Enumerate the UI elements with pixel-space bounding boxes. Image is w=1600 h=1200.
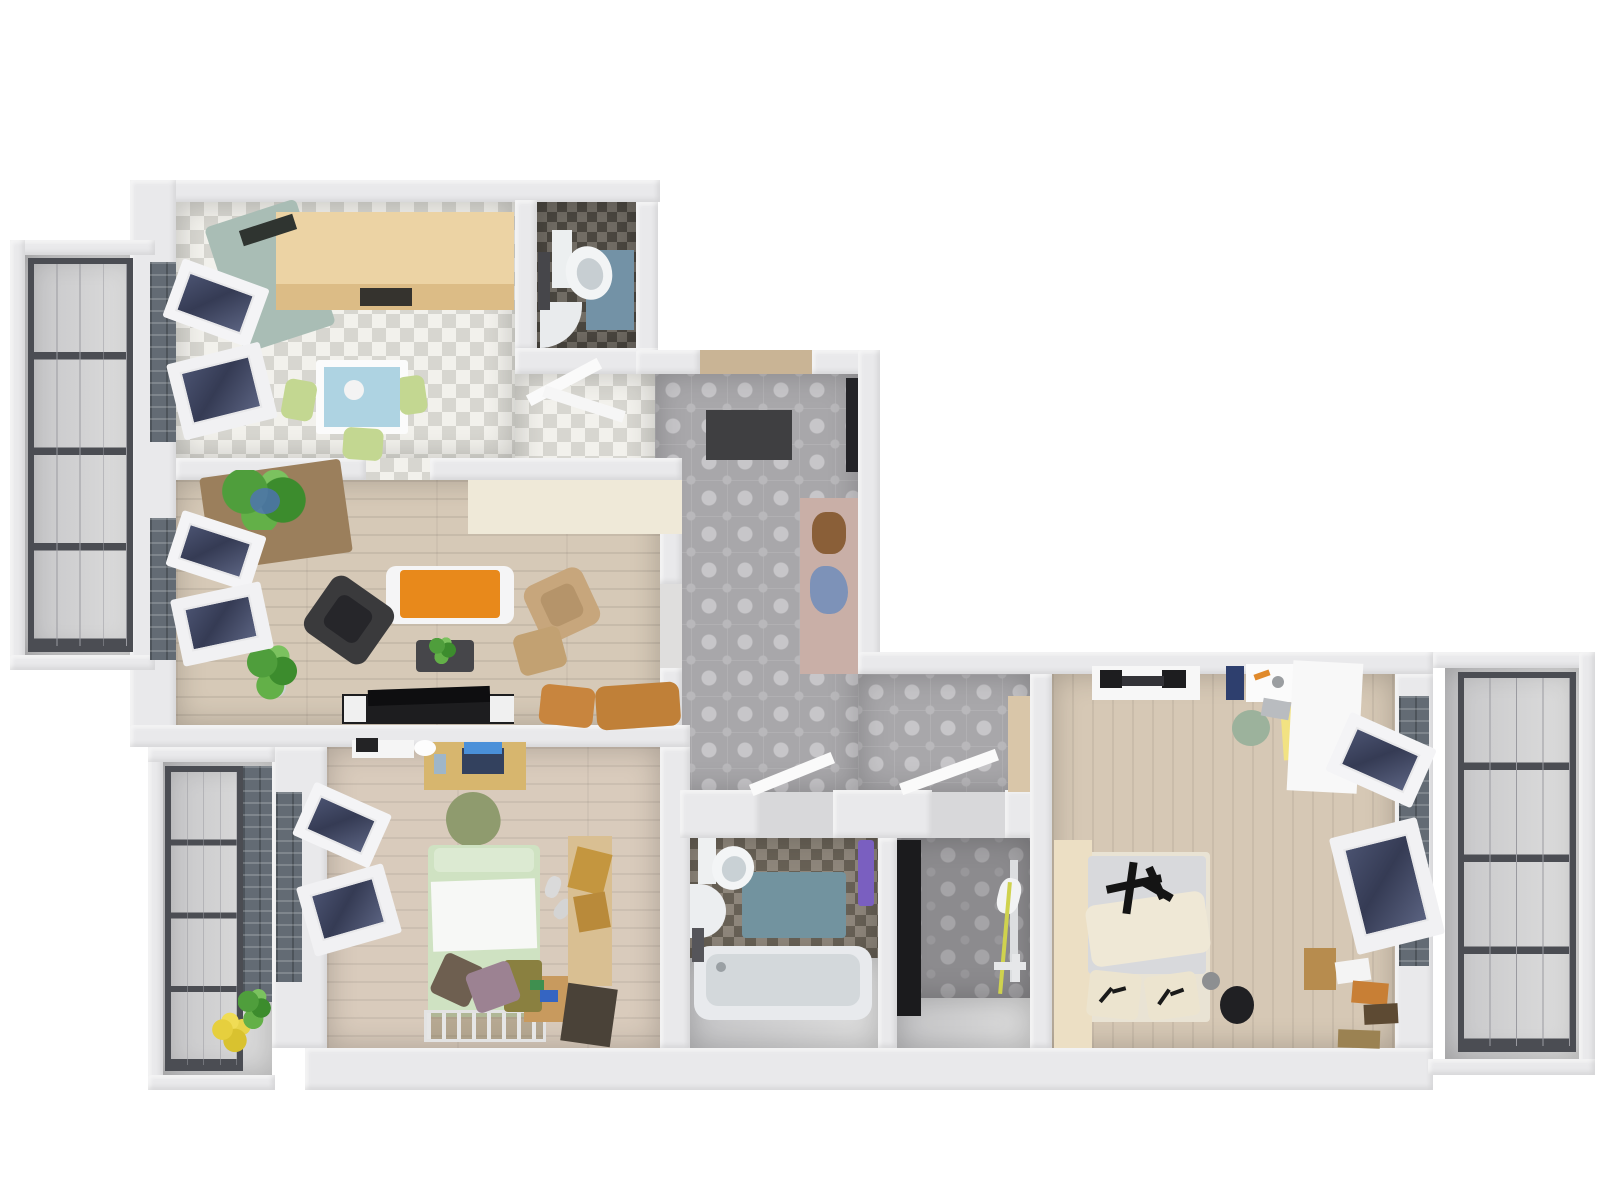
phone	[434, 754, 446, 774]
wall-entry-right	[858, 350, 880, 674]
shoes-on-cabinet	[812, 512, 846, 554]
coffee-table-plant	[428, 636, 458, 664]
kitchen-counter	[276, 212, 514, 290]
waste-bin	[1220, 986, 1254, 1024]
poster-tan	[1338, 1029, 1381, 1048]
bedroom2-wardrobe	[1054, 840, 1092, 1048]
dining-table-top	[324, 367, 400, 427]
wall-top	[130, 180, 660, 202]
balcony-left-wall-top	[10, 240, 155, 255]
towel-purple	[858, 840, 874, 906]
balcony-plant-green	[238, 986, 272, 1030]
wall-entry-top-left	[636, 350, 700, 374]
clothes-stack	[560, 983, 618, 1047]
sideboard	[468, 480, 682, 534]
wall-corridor-bottom-a	[680, 790, 760, 838]
bathtub-inner	[706, 954, 860, 1006]
clothes-on-cabinet	[810, 566, 848, 614]
tv-speaker-right	[490, 696, 514, 722]
shower-handle-2	[1012, 954, 1020, 982]
shower-handle-1	[994, 962, 1026, 970]
floor-plan-render	[0, 0, 1600, 1200]
entry-door-frame	[700, 350, 812, 374]
wooden-box	[1304, 948, 1336, 990]
balcony-left-window	[28, 258, 133, 652]
threshold-living-hall	[660, 584, 682, 668]
bathtub-drain	[716, 962, 726, 972]
balcony-right-wall-bottom	[1428, 1059, 1595, 1075]
cardboard-box-2	[573, 891, 611, 932]
wall-corridor-bottom-b	[833, 790, 932, 838]
balcony-left-wall-side	[10, 240, 25, 670]
balcony-left-wall-bottom	[10, 655, 155, 670]
wall-bottom	[305, 1048, 1433, 1090]
sofa-cushions	[400, 570, 500, 618]
wall-bath-shower	[878, 838, 897, 1048]
desk-jar	[1272, 676, 1284, 688]
wood-stool-2	[595, 681, 682, 731]
bathroom-shelf	[692, 928, 704, 962]
tv-speaker-left	[344, 696, 366, 722]
bed2-pillow-2	[1143, 971, 1201, 1022]
table-plate	[344, 380, 364, 400]
balcony-right-window	[1458, 672, 1576, 1052]
wall-wc-left	[515, 200, 537, 350]
stove	[360, 288, 412, 306]
laptop-screen	[464, 742, 502, 754]
bedroom1-shelf-items	[356, 738, 378, 752]
bedroom2-shelf-item-1	[1100, 670, 1122, 688]
bathroom-rug	[742, 872, 846, 938]
entry-doormat	[706, 410, 792, 460]
poster-dark	[1363, 1003, 1398, 1025]
book-stack	[1226, 666, 1244, 700]
poster-orange	[1351, 980, 1389, 1005]
balcony-bottom-wall-bottom	[148, 1075, 275, 1090]
entry-mirror	[846, 378, 858, 472]
dining-chair-3	[342, 427, 384, 462]
bed1-pillow	[434, 848, 534, 872]
wood-stool-1	[538, 683, 596, 728]
nightstand-item-green	[530, 980, 544, 990]
balcony-right-wall-top	[1433, 652, 1595, 668]
nightstand-item-blue	[540, 990, 558, 1002]
dining-chair-2	[395, 374, 428, 416]
bed1-blanket	[431, 878, 537, 952]
planter-blue-flowers	[250, 488, 280, 514]
paper-roll	[414, 740, 436, 756]
bedroom2-shelf-bar	[1122, 676, 1164, 686]
shower-dark-panel	[897, 840, 921, 1016]
door-leaf-bedroom2	[1008, 696, 1030, 792]
balcony-right-wall-side	[1579, 652, 1595, 1075]
wall-living-top-right	[430, 458, 682, 480]
balcony-bottom-wall-side	[148, 747, 163, 1090]
gray-ball	[1202, 972, 1220, 990]
brick-wall-living	[150, 518, 176, 660]
threshold-bathroom-door	[760, 792, 833, 838]
bedroom2-shelf-item-2	[1162, 670, 1186, 688]
threshold-shower-door	[932, 792, 1005, 838]
brick-wall-balcony-bottom	[243, 766, 272, 1002]
bed2-pillow-1	[1086, 969, 1143, 1020]
balcony-bottom-wall-top	[148, 747, 275, 762]
wall-shower-right	[1030, 674, 1052, 1048]
wc-shelf	[538, 252, 550, 310]
bedroom2-small-desk	[1246, 664, 1294, 702]
